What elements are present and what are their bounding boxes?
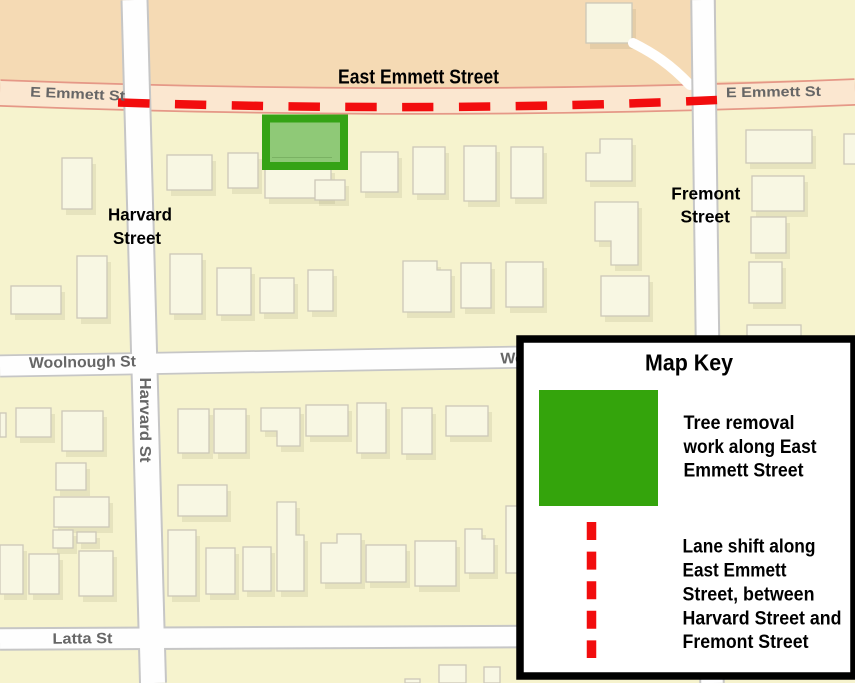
svg-text:East Emmett Street: East Emmett Street	[338, 67, 499, 89]
svg-text:Map Key: Map Key	[645, 349, 733, 375]
svg-text:Street, between: Street, between	[683, 585, 815, 606]
svg-text:Lane shift along: Lane shift along	[683, 537, 816, 558]
svg-text:Harvard Street and: Harvard Street and	[683, 608, 842, 629]
svg-text:E Emmett St: E Emmett St	[726, 83, 822, 100]
svg-text:Fremont: Fremont	[671, 184, 740, 204]
svg-text:Fremont Street: Fremont Street	[683, 632, 810, 653]
svg-text:Tree removal: Tree removal	[684, 413, 795, 434]
svg-text:work along East: work along East	[683, 437, 818, 458]
svg-text:Harvard: Harvard	[108, 205, 172, 225]
svg-text:East Emmett: East Emmett	[683, 561, 788, 582]
svg-text:Woolnough St: Woolnough St	[29, 353, 136, 372]
svg-text:Street: Street	[113, 228, 161, 248]
svg-text:Street: Street	[680, 207, 730, 227]
svg-text:Harvard St: Harvard St	[136, 378, 153, 464]
svg-text:Latta St: Latta St	[52, 630, 112, 648]
svg-text:Emmett Street: Emmett Street	[684, 461, 805, 482]
